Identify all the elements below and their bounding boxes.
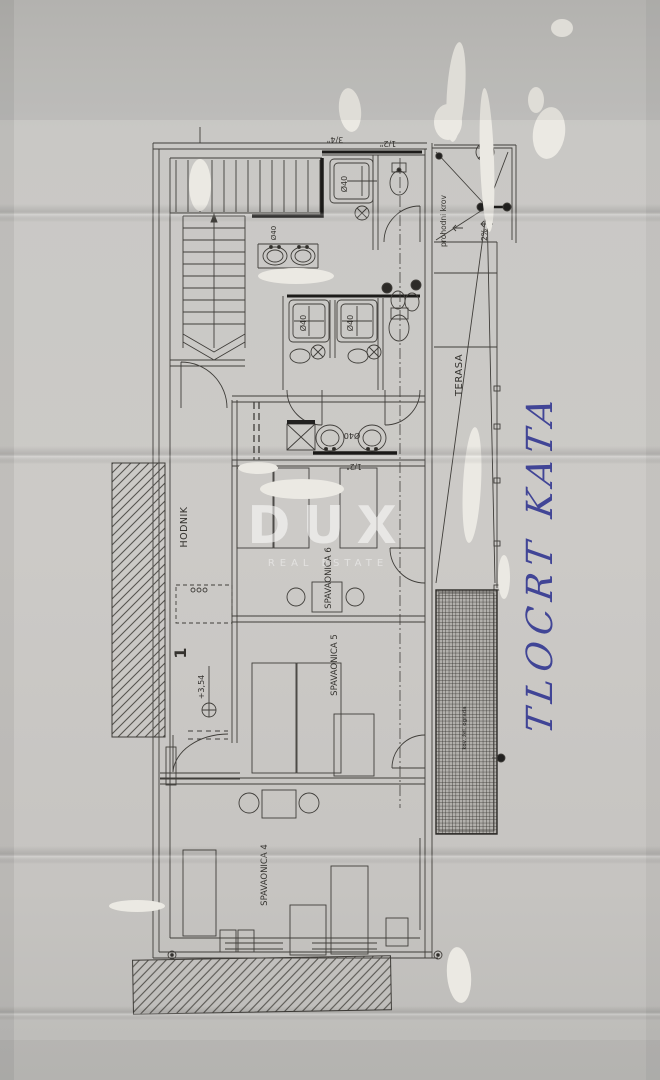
scanned-floor-plan-photo: HODNIK SPAVAONICA 6 SPAVAONICA 5 SPAVAON… (0, 0, 660, 1080)
label-hodnik: HODNIK (179, 506, 190, 547)
label-pipe-half-top: 1/2" (380, 139, 397, 148)
floor-plan-canvas: HODNIK SPAVAONICA 6 SPAVAONICA 5 SPAVAON… (0, 0, 660, 1080)
label-spavaonica-5: SPAVAONICA 5 (330, 634, 340, 696)
label-pipe-three-quarter: 3/4" (327, 135, 344, 144)
dux-watermark: DUX REAL ESTATE (247, 496, 408, 569)
handwriting-text: TLOCRT KATA (518, 388, 561, 736)
label-drain-1: Ø40 (339, 176, 349, 192)
label-stair-number: 1 (171, 647, 190, 658)
side-building-hatch (112, 463, 165, 737)
label-drain-3: Ø40 (298, 315, 308, 331)
label-elevation: +3,54 (197, 675, 206, 700)
balcony (436, 590, 505, 834)
label-terasa: TERASA (454, 354, 465, 397)
label-drain-5: Ø40 (344, 431, 360, 441)
watermark-brand: DUX (247, 496, 408, 556)
label-drain-4: Ø40 (345, 315, 355, 331)
watermark-tagline: REAL ESTATE (268, 558, 388, 569)
bottom-building-hatch (133, 956, 392, 1014)
handwritten-note: TLOCRT KATA (518, 388, 561, 736)
label-drain-2: Ø40 (270, 226, 278, 240)
label-slope: 2% (480, 229, 489, 241)
label-spavaonica-6: SPAVAONICA 6 (324, 547, 334, 609)
label-railing-note: kov. žel. ograda (461, 706, 468, 749)
